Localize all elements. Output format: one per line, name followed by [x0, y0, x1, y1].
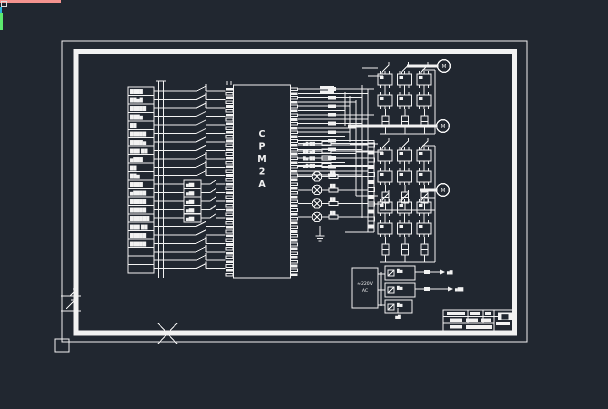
plc-terminal: [291, 213, 298, 216]
text-bar: [380, 173, 384, 176]
plc-terminal: [226, 140, 233, 143]
signal-label: ██▆: [129, 174, 140, 180]
plc-terminal: [291, 269, 298, 272]
input-bus: [156, 81, 166, 278]
plc-terminal: [226, 213, 233, 216]
contact-box-label: ▆██: [185, 182, 195, 187]
resistor: [329, 188, 338, 192]
text-bar: [400, 76, 404, 79]
text-bar: [419, 76, 423, 79]
signal-label: █████: [129, 233, 147, 239]
plc-terminal: [226, 101, 233, 104]
wire: [196, 112, 206, 117]
plc-block: CPM2A: [226, 81, 298, 278]
text-bar: [450, 325, 462, 329]
title-block: ██: [443, 310, 516, 331]
plc-terminal: [226, 247, 233, 250]
wire: [382, 141, 389, 148]
cad-viewport: ██████▆█████████▆███████████▆███ ██▆████…: [0, 0, 608, 409]
signal-label: ██▆█: [129, 98, 144, 104]
signal-label: ███ ██: [129, 148, 148, 154]
plc-terminal: [226, 191, 233, 194]
motor-letter: M: [441, 188, 446, 194]
plc-terminal: [226, 217, 233, 220]
relay-cell: [398, 95, 412, 106]
plc-terminal: [291, 243, 298, 246]
plc-terminal: [226, 170, 233, 173]
text-bar: [380, 76, 384, 79]
plc-terminal: [291, 170, 298, 173]
text-bar: [419, 97, 423, 100]
plc-terminal: [291, 226, 298, 229]
junction: [328, 122, 336, 126]
plc-terminal: [226, 144, 233, 147]
wire: [210, 197, 216, 201]
plc-terminal: [226, 204, 233, 207]
ac-unit: AC: [362, 288, 368, 294]
plc-terminal: [226, 252, 233, 255]
plc-terminal: [226, 148, 233, 151]
resistor: [329, 215, 338, 219]
wire: [196, 247, 206, 252]
plc-terminal: [291, 166, 298, 169]
plc-terminal: [291, 127, 298, 130]
plc-name-letter: A: [258, 179, 266, 190]
contact-box-label: ▆██: [185, 207, 195, 212]
wire: [196, 171, 206, 176]
text-bar: [419, 225, 423, 228]
signal-label: ▆███: [129, 157, 144, 163]
wire: [388, 270, 394, 276]
terminal: [368, 210, 375, 214]
power-supply: ≈220VAC█▆█▆█▆▆█▆██▆█: [352, 266, 464, 319]
plc-terminal: [291, 265, 298, 268]
terminal: [368, 224, 375, 228]
wire: [402, 141, 409, 148]
text-bar: [496, 322, 510, 325]
plc-terminal: [291, 222, 298, 225]
edit-marks: [55, 289, 177, 352]
junction: [328, 104, 336, 108]
text-bar: [419, 152, 423, 155]
psu-box-label: █▆: [396, 285, 403, 290]
signal-label: █████: [129, 208, 147, 214]
relay-cell: [417, 95, 431, 106]
plc-terminal: [291, 256, 298, 259]
plc-terminal: [226, 187, 233, 190]
wire: [210, 214, 216, 218]
wire: [196, 255, 206, 260]
motor-letter: M: [442, 64, 447, 70]
relay-cell: [417, 74, 431, 85]
junction: [328, 96, 336, 100]
contact-box-label: ▆██: [185, 199, 195, 204]
plc-terminal: [291, 144, 298, 147]
plc-terminal: [226, 118, 233, 121]
signal-label: █████: [129, 131, 147, 137]
text-bar: [450, 319, 462, 323]
plc-terminal: [226, 243, 233, 246]
plc-terminal: [226, 114, 233, 117]
signal-label: █████: [129, 199, 147, 205]
text-bar: [380, 204, 384, 207]
plc-terminal: [291, 97, 298, 100]
plc-terminal: [291, 187, 298, 190]
text-bar: [419, 204, 423, 207]
signal-label: ██: [129, 165, 137, 171]
wire: [196, 145, 206, 150]
plc-terminal: [226, 179, 233, 182]
title-highlight-text: ██: [501, 314, 509, 321]
relay-group-3: [378, 190, 435, 262]
relay-cell: [398, 150, 412, 161]
plc-terminal: [291, 230, 298, 233]
signal-label: ███ ██: [129, 224, 148, 230]
text-bar: [380, 152, 384, 155]
relay-cell: [378, 95, 392, 106]
arrow-icon: [440, 270, 445, 275]
output-wires: [298, 68, 383, 241]
relay-cell: [398, 223, 412, 234]
text-bar: [470, 312, 480, 315]
text-bar: [380, 97, 384, 100]
plc-terminal: [226, 92, 233, 95]
plc-terminal: [226, 222, 233, 225]
contact-box-label: ▆██: [185, 190, 195, 195]
plc-terminal: [291, 252, 298, 255]
terminal: [368, 195, 375, 199]
motor-2: M: [348, 120, 449, 133]
plc-terminal: [291, 191, 298, 194]
plc-terminal: [291, 273, 298, 276]
junction: [328, 130, 336, 134]
text-bar: [400, 204, 404, 207]
plc-terminal: [291, 131, 298, 134]
plc-terminal: [291, 260, 298, 263]
bus-bar: [320, 86, 334, 89]
text-bar: [466, 319, 478, 323]
plc-terminal: [291, 200, 298, 203]
wire: [196, 103, 206, 108]
ac-source: [352, 268, 378, 308]
plc-terminal: [226, 235, 233, 238]
text-bar: [485, 312, 491, 315]
plc-terminal: [291, 239, 298, 242]
wire: [210, 180, 216, 184]
wire: [196, 238, 206, 243]
plc-terminal: [226, 269, 233, 272]
signal-label: ████: [129, 89, 144, 95]
plc-terminal: [291, 217, 298, 220]
signal-table: ██████▆█████████▆███████████▆███ ██▆████…: [128, 87, 154, 273]
signal-label: ██████: [129, 216, 150, 222]
plc-terminal: [226, 200, 233, 203]
plc-terminal: [226, 110, 233, 113]
text-bar: [380, 225, 384, 228]
text-bar: [424, 270, 430, 274]
terminal: [368, 150, 375, 154]
text-bar: [424, 287, 430, 291]
plc-terminal: [226, 260, 233, 263]
plc-terminal: [226, 97, 233, 100]
plc-terminal: [291, 88, 298, 91]
plc-terminal: [291, 92, 298, 95]
plc-terminal: [291, 157, 298, 160]
text-bar: [419, 173, 423, 176]
input-wires: ▆██▆██▆██▆██▆██: [154, 84, 226, 268]
lamp-label: ██: [329, 210, 336, 215]
relay-cell: [417, 223, 431, 234]
wire: [196, 264, 206, 269]
arrow-icon: [448, 287, 453, 292]
plc-terminal: [226, 196, 233, 199]
plc-terminal: [226, 166, 233, 169]
motor-letter: M: [441, 124, 446, 130]
plc-terminal: [226, 265, 233, 268]
plc-terminal: [291, 247, 298, 250]
plc-terminal: [291, 122, 298, 125]
signal-label: █████: [129, 241, 147, 247]
relay-cell: [417, 171, 431, 182]
lamp-label: ██: [329, 183, 336, 188]
contact-box-label: ▆██: [185, 216, 195, 221]
plc-name-letter: P: [259, 142, 266, 153]
wire: [388, 304, 394, 310]
plc-terminal: [226, 157, 233, 160]
relay-group-2: [378, 138, 435, 210]
wire: [382, 65, 389, 72]
wire: [421, 193, 428, 200]
wire: [388, 287, 394, 293]
plc-terminal: [291, 161, 298, 164]
plc-terminal: [291, 114, 298, 117]
text-bar: [400, 97, 404, 100]
plc-terminal: [291, 148, 298, 151]
plc-name-letter: 2: [259, 167, 266, 178]
plc-terminal: [291, 140, 298, 143]
plc-terminal: [291, 196, 298, 199]
signal-label: ██: [129, 123, 137, 129]
relay-group-1: [378, 62, 435, 134]
relay-cell: [398, 171, 412, 182]
plc-terminal: [226, 105, 233, 108]
plc-terminal: [291, 105, 298, 108]
plc-name-letter: M: [257, 154, 266, 165]
wire: [196, 95, 206, 100]
plc-terminal: [291, 204, 298, 207]
psu-box-label: █▆: [396, 302, 403, 307]
wire: [196, 137, 206, 142]
plc-terminal: [226, 226, 233, 229]
relay-cell: [417, 150, 431, 161]
relay-cell: [378, 223, 392, 234]
psu-ground-label: ▆█: [394, 314, 401, 319]
plc-terminal: [226, 135, 233, 138]
plc-name-letter: C: [259, 129, 266, 140]
plc-terminal: [226, 183, 233, 186]
plc-terminal: [291, 179, 298, 182]
ac-voltage: ≈220V: [357, 281, 374, 287]
plc-terminal: [291, 235, 298, 238]
signal-label: █████: [129, 106, 147, 112]
wire: [196, 128, 206, 133]
wire: [196, 120, 206, 125]
text-bar: [400, 173, 404, 176]
plc-terminal: [291, 118, 298, 121]
relay-cell: [398, 74, 412, 85]
psu-box-label: █▆: [396, 268, 403, 273]
psu-output-label: ▆██: [454, 287, 464, 292]
wire: [210, 206, 216, 210]
text-bar: [481, 319, 491, 323]
plc-terminal: [291, 135, 298, 138]
terminal: [368, 165, 375, 169]
signal-label: ████: [129, 182, 144, 188]
signal-label: ▆████: [129, 191, 147, 197]
plc-terminal: [291, 153, 298, 156]
text-bar: [466, 325, 492, 329]
junction: [328, 113, 336, 117]
signal-label: ████▆: [129, 140, 147, 146]
resistor: [329, 202, 338, 206]
wire: [210, 189, 216, 193]
plc-terminal: [291, 110, 298, 113]
plc-terminal: [291, 183, 298, 186]
schematic-canvas[interactable]: ██████▆█████████▆███████████▆███ ██▆████…: [0, 0, 608, 409]
plc-terminal: [226, 230, 233, 233]
lamp-label: ██: [329, 169, 336, 174]
bus-bar: [320, 91, 334, 94]
wire: [421, 141, 428, 148]
wire: [196, 86, 206, 91]
text-bar: [400, 152, 404, 155]
relay-cell: [378, 171, 392, 182]
plc-terminal: [226, 127, 233, 130]
wire: [382, 193, 389, 200]
wire: [402, 193, 409, 200]
wire: [196, 154, 206, 159]
psu-output-label: ▆█: [446, 270, 453, 275]
wire: [196, 230, 206, 235]
plc-terminal: [226, 161, 233, 164]
wire: [196, 162, 206, 167]
plc-terminal: [291, 174, 298, 177]
plc-terminal: [291, 209, 298, 212]
plc-terminal: [226, 256, 233, 259]
plc-terminal: [226, 153, 233, 156]
plc-terminal: [226, 209, 233, 212]
lamp-label: ██: [329, 196, 336, 201]
terminal: [368, 180, 375, 184]
plc-terminal: [226, 122, 233, 125]
text-bar: [400, 225, 404, 228]
plc-terminal: [226, 174, 233, 177]
plc-terminal: [226, 239, 233, 242]
plc-terminal: [226, 273, 233, 276]
plc-terminal: [226, 88, 233, 91]
text-bar: [447, 312, 465, 315]
plc-terminal: [291, 101, 298, 104]
signal-label: ███▆: [129, 115, 144, 121]
plc-terminal: [226, 131, 233, 134]
